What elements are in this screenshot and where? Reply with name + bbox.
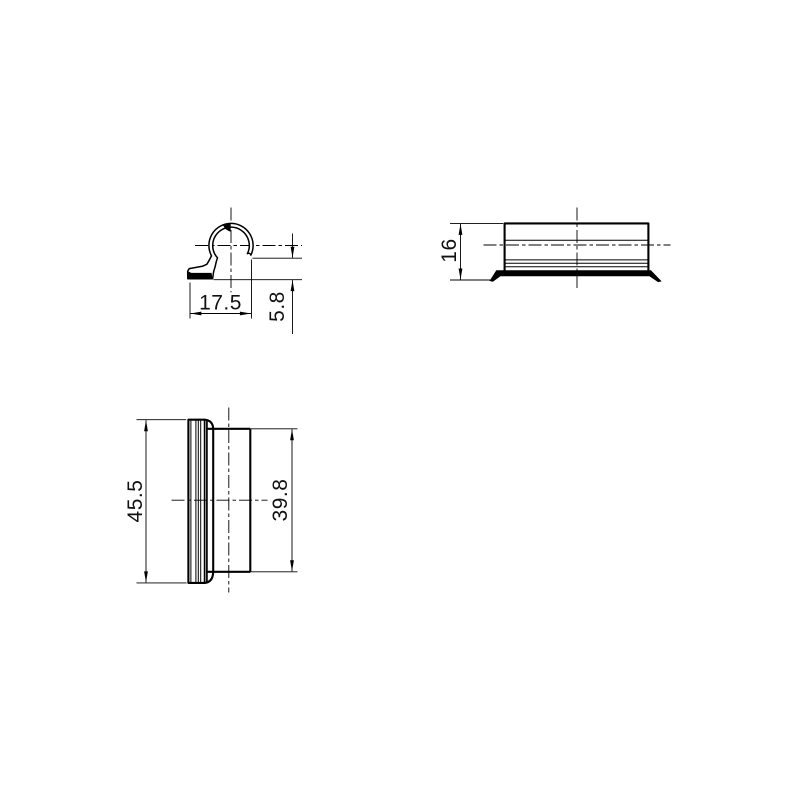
dim-16-label: 16 xyxy=(438,238,461,262)
dim-5-8-label: 5.8 xyxy=(266,291,289,322)
plan-view: 45.5 39.8 xyxy=(124,408,298,593)
dim-17-5-label: 17.5 xyxy=(199,292,242,315)
dim-16-arrow-down xyxy=(459,269,463,280)
dim-39-8-arrow-up xyxy=(290,429,294,440)
dim-16-arrow-up xyxy=(459,224,463,235)
technical-drawing-canvas: 17.5 5.8 xyxy=(0,0,800,800)
side-elevation-view: 16 xyxy=(438,208,671,292)
dim-45-5-arrow-up xyxy=(144,420,148,431)
clip-profile-view: 17.5 5.8 xyxy=(188,208,302,335)
side-base-plate xyxy=(490,270,662,282)
dim-45-5-label: 45.5 xyxy=(124,480,147,523)
dim-5-8-arrow-up xyxy=(291,280,295,291)
drawing-sheet: 17.5 5.8 xyxy=(0,0,800,800)
dim-5-8-arrow-down xyxy=(291,247,295,258)
dim-39-8-arrow-down xyxy=(290,560,294,571)
dim-45-5-arrow-down xyxy=(144,571,148,582)
clip-profile-outline xyxy=(188,223,253,278)
dim-39-8-label: 39.8 xyxy=(269,479,292,522)
